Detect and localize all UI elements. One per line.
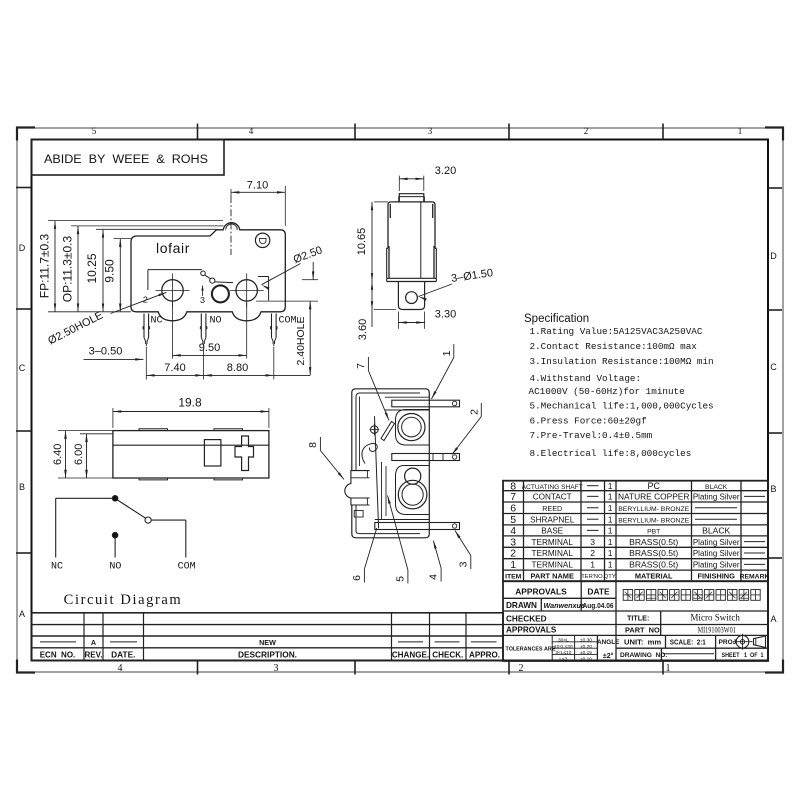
svg-text:TERMINAL: TERMINAL (531, 561, 573, 570)
svg-text:BLACK: BLACK (705, 484, 728, 491)
svg-text:MI191003W01: MI191003W01 (698, 625, 736, 635)
svg-text:1: 1 (608, 503, 613, 513)
svg-text:±0.20: ±0.20 (580, 644, 592, 650)
svg-text:D: D (19, 243, 26, 253)
svg-text:±0.15: ±0.15 (580, 650, 592, 656)
svg-text:TITLE:: TITLE: (627, 614, 649, 623)
svg-text:2: 2 (468, 409, 480, 415)
svg-text:5: 5 (510, 514, 516, 526)
svg-text:±2°: ±2° (603, 652, 614, 660)
svg-text:Micro Switch: Micro Switch (690, 614, 740, 624)
svg-text:NATURE COPPER: NATURE COPPER (618, 492, 690, 502)
svg-text:BRASS(0.5t): BRASS(0.5t) (629, 548, 678, 558)
svg-text:±0.10: ±0.10 (580, 657, 592, 663)
svg-text:BERYLLIUM- BRONZE: BERYLLIUM- BRONZE (618, 517, 689, 524)
svg-text:lofair: lofair (156, 240, 190, 256)
svg-text:1: 1 (608, 560, 613, 570)
svg-text:3: 3 (510, 536, 516, 548)
svg-text:1: 1 (608, 526, 613, 536)
svg-text:8.Electrical life:8,000cycles: 8.Electrical life:8,000cycles (530, 448, 692, 459)
svg-text:7: 7 (510, 491, 516, 503)
svg-text:PART NO.: PART NO. (625, 626, 662, 635)
svg-text:QTY.: QTY. (604, 574, 617, 580)
svg-text:4: 4 (428, 574, 440, 580)
svg-text:ACTUATING SHAFT: ACTUATING SHAFT (522, 484, 583, 491)
svg-text:5: 5 (92, 126, 97, 136)
svg-text:10.25: 10.25 (85, 253, 99, 283)
svg-text:SHEET 1 OF 1: SHEET 1 OF 1 (722, 652, 764, 659)
svg-text:PC: PC (647, 481, 660, 491)
svg-text:APPROVALS: APPROVALS (515, 587, 567, 597)
svg-text:DATE: DATE (587, 587, 610, 597)
svg-text:2: 2 (519, 663, 524, 674)
svg-text:TOLERANCES ARE: TOLERANCES ARE (506, 647, 556, 653)
svg-text:FP:11.7±0.3: FP:11.7±0.3 (37, 233, 51, 298)
svg-text:Plating Silver: Plating Silver (693, 493, 740, 502)
svg-text:7.40: 7.40 (164, 362, 185, 374)
svg-text:REED: REED (542, 504, 562, 513)
svg-text:A: A (19, 609, 25, 619)
svg-text:2: 2 (584, 126, 589, 136)
svg-text:ANGLE: ANGLE (597, 639, 620, 646)
svg-text:3<L≤10: 3<L≤10 (555, 650, 571, 656)
svg-text:Plating Silver: Plating Silver (693, 538, 740, 547)
svg-text:APPRO.: APPRO. (469, 650, 500, 659)
svg-text:UNIT: mm: UNIT: mm (624, 637, 661, 646)
svg-text:L≤3: L≤3 (559, 657, 567, 663)
svg-text:COM: COM (278, 316, 296, 327)
svg-text:3.20: 3.20 (435, 165, 456, 177)
svg-text:DESCRIPTION.: DESCRIPTION. (238, 649, 297, 659)
svg-text:1: 1 (608, 548, 613, 558)
svg-text:DRAWING NO.: DRAWING NO. (620, 652, 667, 659)
svg-text:2: 2 (590, 548, 595, 558)
svg-text:9.50: 9.50 (103, 259, 117, 283)
svg-text:1: 1 (608, 537, 613, 547)
svg-text:3: 3 (200, 296, 205, 306)
svg-text:SCALE: 2:1: SCALE: 2:1 (670, 637, 706, 646)
svg-text:NO: NO (209, 316, 221, 327)
svg-text:BLACK: BLACK (702, 526, 730, 536)
svg-text:4: 4 (249, 126, 254, 136)
svg-text:Plating Silver: Plating Silver (693, 561, 740, 570)
svg-text:TERMINAL: TERMINAL (531, 538, 573, 547)
svg-text:A: A (770, 614, 776, 624)
svg-text:CHECKED: CHECKED (506, 615, 547, 624)
svg-text:±0.30: ±0.30 (580, 637, 592, 643)
svg-text:30<L: 30<L (558, 637, 569, 643)
svg-text:C: C (19, 363, 26, 373)
svg-text:6.40: 6.40 (52, 444, 64, 465)
svg-text:2: 2 (510, 548, 516, 560)
svg-text:1: 1 (441, 350, 453, 356)
svg-text:1: 1 (608, 481, 613, 491)
svg-text:7: 7 (355, 363, 367, 369)
svg-text:Aug.04.06: Aug.04.06 (583, 601, 614, 610)
svg-text:NO: NO (109, 562, 121, 573)
svg-text:CHANGE.: CHANGE. (392, 650, 429, 659)
svg-text:COM: COM (178, 562, 196, 573)
svg-text:19.8: 19.8 (178, 396, 202, 410)
svg-text:DRAWN: DRAWN (506, 601, 537, 610)
svg-text:TERMINAL: TERMINAL (531, 549, 573, 558)
svg-text:ECN NO.: ECN NO. (40, 650, 76, 659)
svg-text:3: 3 (428, 126, 433, 136)
svg-text:3.Insulation Resistance:100MΩ: 3.Insulation Resistance:100MΩ min (530, 356, 714, 367)
svg-text:NC: NC (51, 562, 63, 573)
svg-text:4: 4 (118, 663, 123, 674)
svg-text:Circuit Diagram: Circuit Diagram (64, 592, 183, 608)
svg-text:1: 1 (738, 126, 743, 136)
svg-text:1: 1 (510, 559, 516, 571)
svg-text:FINISHING: FINISHING (698, 572, 736, 581)
svg-text:7.Pre-Travel:0.4±0.5mm: 7.Pre-Travel:0.4±0.5mm (530, 430, 653, 441)
svg-text:3: 3 (457, 561, 469, 567)
svg-text:Plating Silver: Plating Silver (693, 549, 740, 558)
svg-text:NC: NC (150, 316, 162, 327)
svg-text:DATE.: DATE. (111, 649, 135, 659)
svg-text:C: C (770, 362, 777, 372)
svg-text:7.10: 7.10 (247, 180, 268, 192)
svg-text:NEW: NEW (259, 638, 276, 647)
svg-text:8: 8 (307, 442, 319, 448)
svg-text:OP:11.3±0.3: OP:11.3±0.3 (60, 235, 74, 302)
svg-text:2.Contact Resistance:100mΩ max: 2.Contact Resistance:100mΩ max (530, 341, 698, 352)
svg-text:CONTACT: CONTACT (533, 493, 572, 502)
svg-text:A: A (91, 638, 96, 647)
svg-text:ABIDE BY WEEE & ROHS: ABIDE BY WEEE & ROHS (44, 152, 208, 166)
svg-text:6.00: 6.00 (73, 444, 85, 465)
svg-text:3–0.50: 3–0.50 (89, 346, 123, 358)
svg-text:3.30: 3.30 (435, 309, 456, 321)
svg-text:1: 1 (666, 663, 671, 674)
svg-text:3: 3 (274, 663, 279, 674)
svg-text:PROJ: PROJ (719, 639, 737, 646)
svg-text:1.Rating Value:5A125VAC3A250VA: 1.Rating Value:5A125VAC3A250VAC (530, 326, 703, 337)
svg-text:BERYLLIUM- BRONZE: BERYLLIUM- BRONZE (618, 506, 689, 513)
svg-text:APPROVALS: APPROVALS (506, 626, 557, 635)
svg-text:1: 1 (608, 492, 613, 502)
svg-text:CHECK.: CHECK. (432, 650, 463, 659)
svg-text:9.50: 9.50 (199, 342, 220, 354)
svg-text:10<L≤30: 10<L≤30 (554, 644, 573, 650)
svg-text:MATERIAL: MATERIAL (635, 572, 673, 581)
svg-text:Wanwenxue: Wanwenxue (544, 601, 585, 610)
svg-text:5.Mechanical life:1,000,000Cyc: 5.Mechanical life:1,000,000Cycles (530, 400, 714, 411)
svg-text:D: D (770, 251, 777, 261)
svg-text:B: B (19, 482, 25, 492)
svg-text:BRASS(0.5t): BRASS(0.5t) (629, 537, 678, 547)
svg-text:3: 3 (590, 537, 595, 547)
svg-text:B: B (770, 484, 776, 494)
svg-text:AC1000V (50-60Hz)for 1minute: AC1000V (50-60Hz)for 1minute (529, 386, 685, 397)
svg-text:6: 6 (510, 502, 516, 514)
svg-text:ITEM: ITEM (505, 574, 522, 581)
svg-text:REMARK: REMARK (740, 574, 770, 581)
svg-text:BASE: BASE (541, 527, 563, 536)
svg-text:Specification: Specification (524, 313, 589, 325)
svg-text:6: 6 (351, 575, 363, 581)
svg-text:PBT: PBT (647, 529, 660, 536)
svg-text:10.65: 10.65 (356, 228, 368, 256)
svg-text:6.Press Force:60±20gf: 6.Press Force:60±20gf (530, 415, 647, 426)
svg-text:REV.: REV. (85, 650, 103, 659)
svg-text:2.40HOLE: 2.40HOLE (295, 316, 307, 365)
svg-text:5: 5 (394, 576, 406, 582)
svg-text:SHRAPNEL: SHRAPNEL (530, 515, 575, 524)
svg-text:4.Withstand Voltage:: 4.Withstand Voltage: (530, 373, 642, 384)
svg-text:PART NAME: PART NAME (531, 572, 574, 581)
svg-text:3.60: 3.60 (357, 319, 369, 340)
svg-text:BRASS(0.5t): BRASS(0.5t) (629, 560, 678, 570)
svg-text:1: 1 (590, 560, 595, 570)
svg-text:4: 4 (510, 525, 516, 537)
svg-text:8.80: 8.80 (227, 362, 248, 374)
svg-text:1: 1 (608, 514, 613, 524)
svg-text:TER'NO.: TER'NO. (581, 574, 604, 580)
